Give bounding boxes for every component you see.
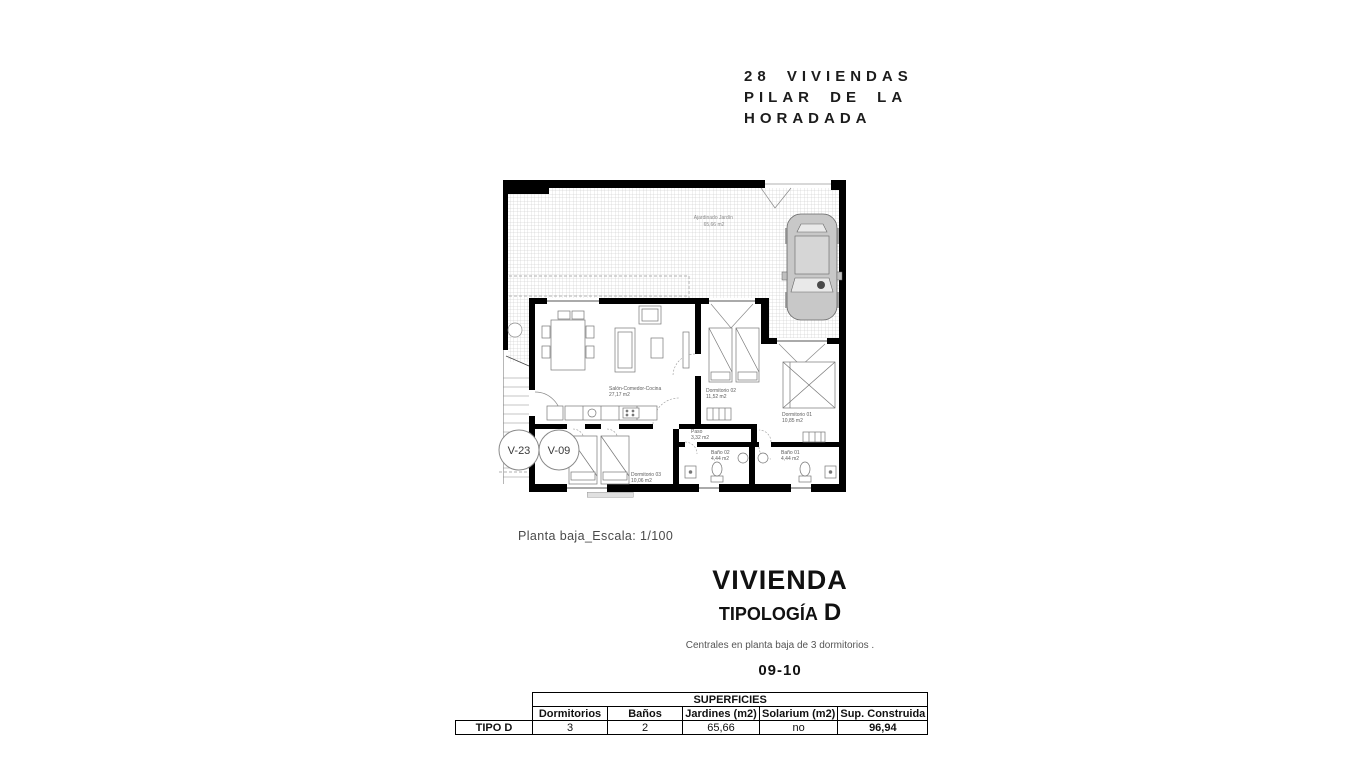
table-row: SUPERFICIES [456,693,928,707]
room-label-salon: Salón-Comedor-Cocina 27,17 m2 [609,386,663,398]
column-header: Sup. Construida [838,707,928,721]
room-label-dormitorio-03: Dormitorio 03 10,06 m2 [631,472,662,484]
floor-plan-drawing: Ajardinado Jardín 65,66 m2 Salón-Comedor… [503,180,849,500]
superficies-table: SUPERFICIES Dormitorios Baños Jardines (… [455,692,928,735]
project-title-line: HORADADA [744,108,913,129]
living-furniture [542,306,689,420]
table-row: TIPO D 3 2 65,66 no 96,94 [456,721,928,735]
unit-tag: V-09 [548,445,571,457]
room-label-dormitorio-02: Dormitorio 02 11,52 m2 [706,388,737,400]
table-cell: no [760,721,838,735]
column-header: Dormitorios [533,707,608,721]
empty-cell [456,707,533,721]
table-cell: 2 [608,721,683,735]
table-cell: 65,66 [683,721,760,735]
floor-plan: Ajardinado Jardín 65,66 m2 Salón-Comedor… [503,180,849,500]
title-block: VIVIENDA TIPOLOGÍAD Centrales en planta … [650,565,910,679]
page: 28 VIVIENDAS PILAR DE LA HORADADA [0,0,1366,768]
project-title: 28 VIVIENDAS PILAR DE LA HORADADA [744,66,913,129]
typology-description: Centrales en planta baja de 3 dormitorio… [650,640,910,651]
bathroom-fixtures [685,453,836,482]
room-label-dormitorio-01: Dormitorio 01 10,85 m2 [782,412,813,424]
room-label-paso: Paso 3,32 m2 [691,429,709,441]
table-cell: 96,94 [838,721,928,735]
empty-cell [456,693,533,707]
typology-label: TIPOLOGÍA [719,604,818,624]
page-title: VIVIENDA [650,565,910,596]
column-header: Solarium (m2) [760,707,838,721]
project-title-line: PILAR DE LA [744,87,913,108]
project-title-line: 28 VIVIENDAS [744,66,913,87]
room-label-bano-02: Baño 02 4,44 m2 [711,450,731,462]
table-cell: 3 [533,721,608,735]
typology-letter: D [824,599,841,626]
room-label-bano-01: Baño 01 4,44 m2 [781,450,801,462]
row-label: TIPO D [456,721,533,735]
car-icon [782,214,842,320]
table-title: SUPERFICIES [533,693,928,707]
unit-tags: V-23 V-09 [499,430,579,470]
unit-tag: V-23 [508,445,531,457]
column-header: Jardines (m2) [683,707,760,721]
utility-marker-icon [508,323,522,337]
column-header: Baños [608,707,683,721]
table-row: Dormitorios Baños Jardines (m2) Solarium… [456,707,928,721]
scale-note: Planta baja_Escala: 1/100 [518,529,673,543]
typology-line: TIPOLOGÍAD [650,599,910,627]
unit-numbers: 09-10 [650,662,910,679]
